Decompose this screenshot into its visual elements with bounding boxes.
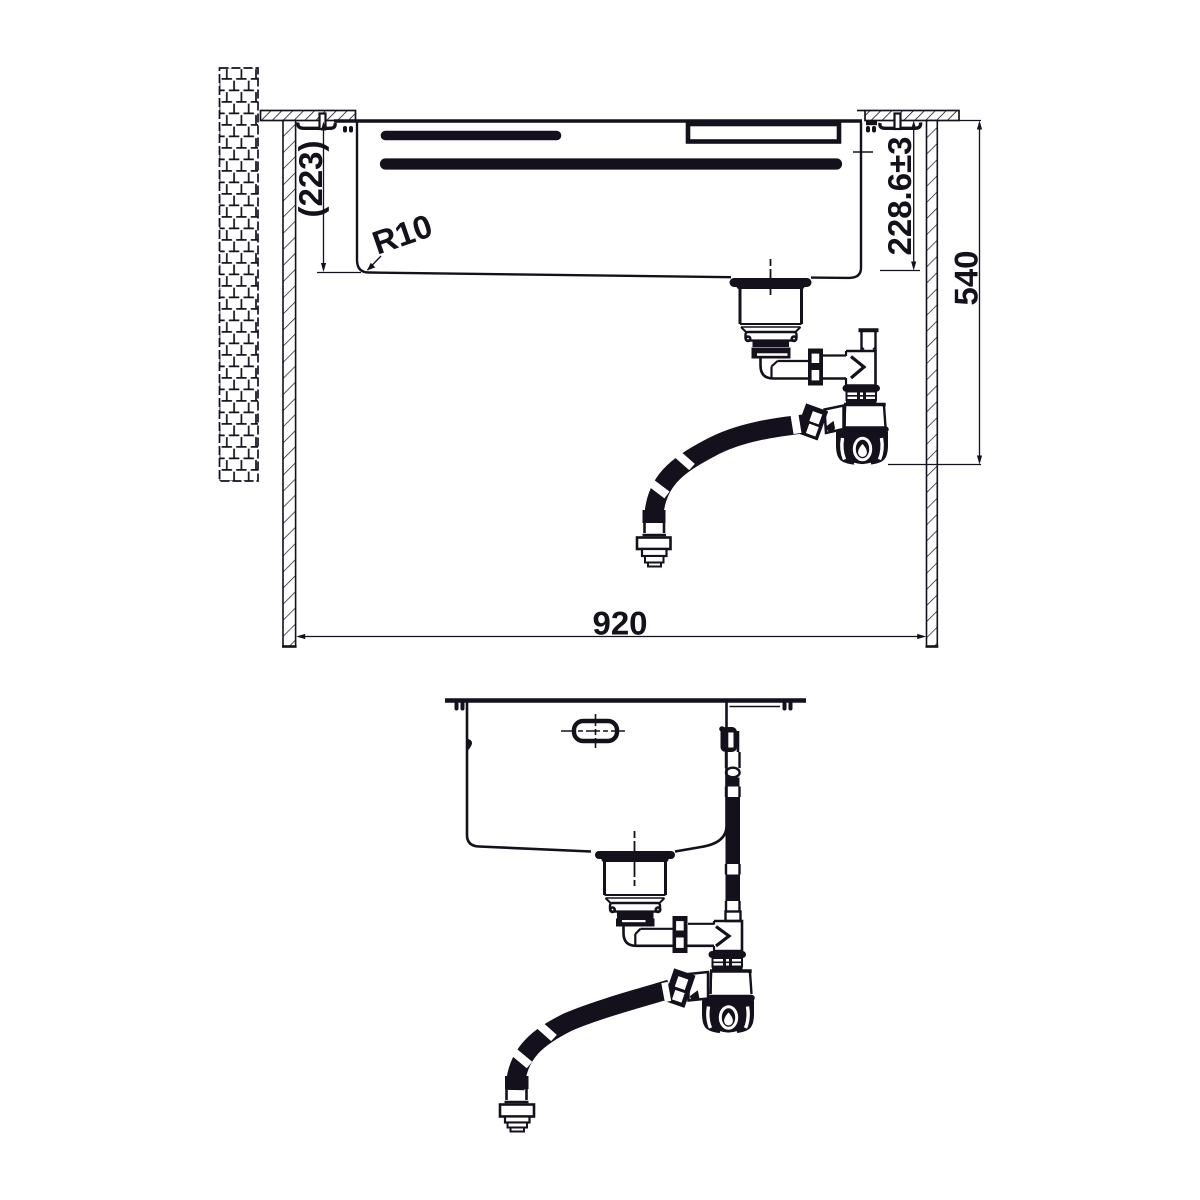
svg-text:540: 540 <box>948 250 985 305</box>
svg-text:920: 920 <box>592 605 647 642</box>
svg-text:228.6±3: 228.6±3 <box>881 136 918 255</box>
svg-text:(223): (223) <box>292 140 329 217</box>
